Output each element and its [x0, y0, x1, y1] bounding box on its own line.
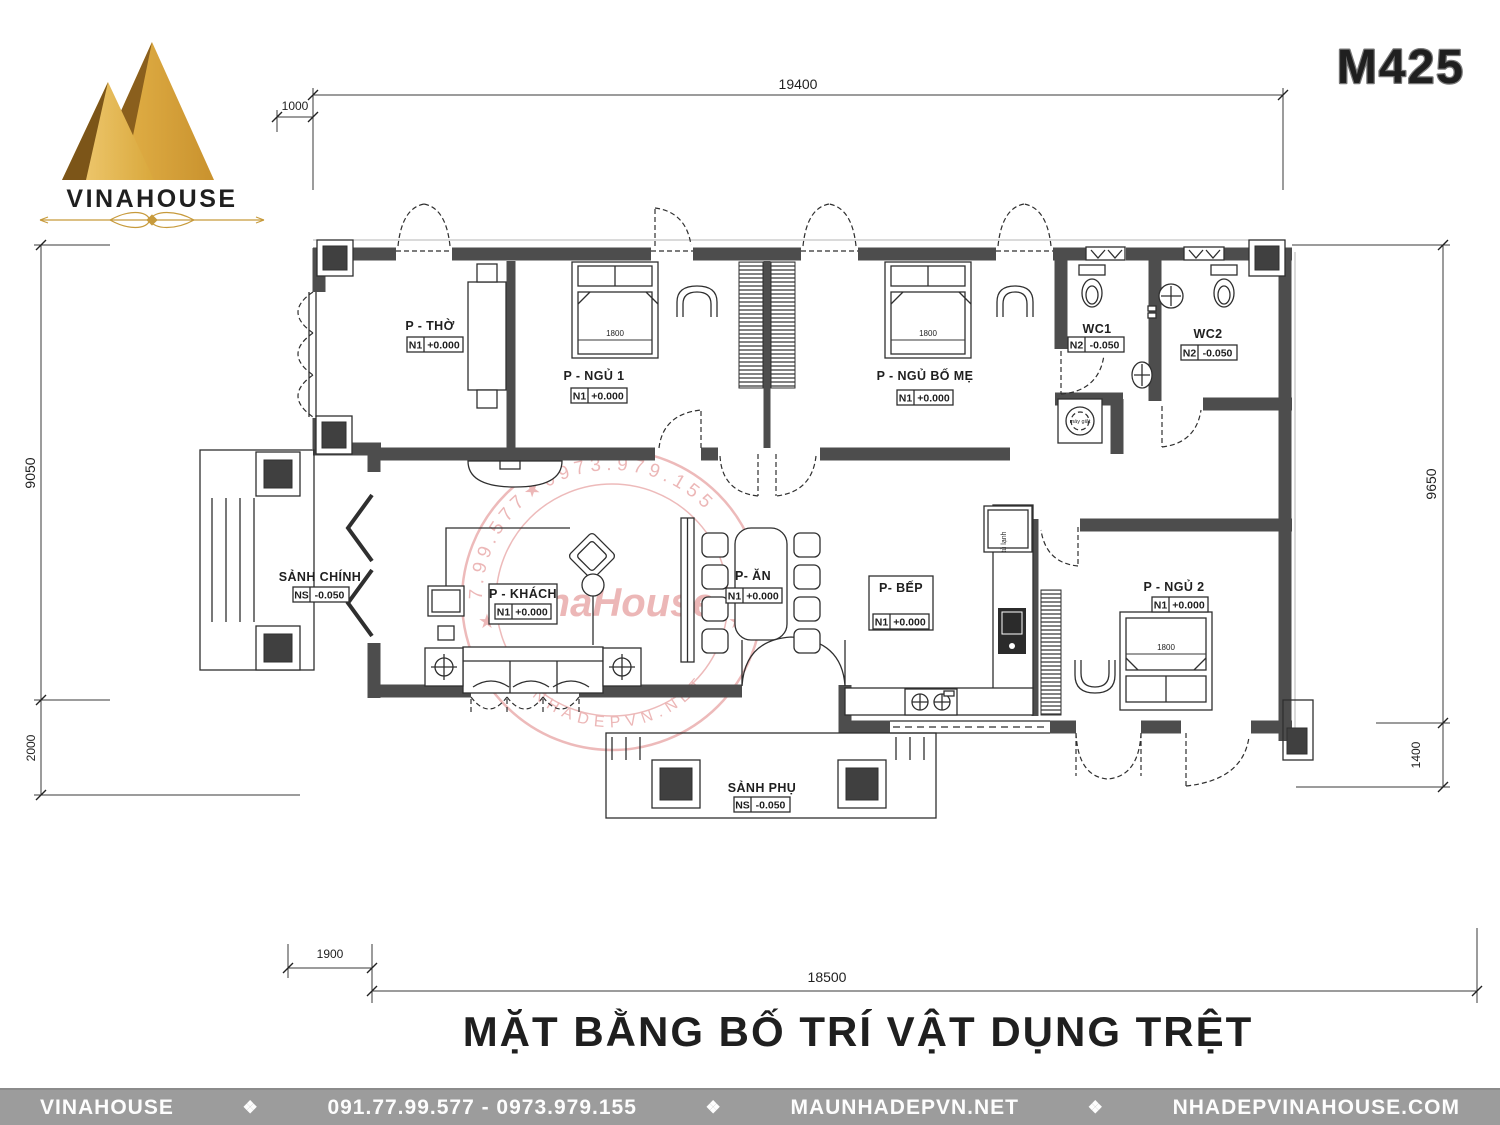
logo-flourish [40, 213, 264, 228]
fridge-label: tủ lạnh [1000, 531, 1008, 552]
floor-plan-drawing: VINAHOUSE M425 7.99.577★0973.979.155 MAU… [0, 0, 1500, 1088]
footer-bar: VINAHOUSE ❖ 091.77.99.577 - 0973.979.155… [0, 1088, 1500, 1125]
level-box-wc1: N2 -0.050 [1068, 337, 1124, 352]
room-label-tho: P - THỜ [405, 318, 454, 333]
svg-text:-0.050: -0.050 [756, 800, 786, 812]
floor-plan-sheet: VINAHOUSE M425 7.99.577★0973.979.155 MAU… [0, 0, 1500, 1125]
svg-text:-0.050: -0.050 [1203, 348, 1233, 360]
room-label-wc2: WC2 [1194, 327, 1223, 341]
footer-site-primary: MAUNHADEPVN.NET [790, 1096, 1019, 1120]
dim-right-offset: 1400 [1409, 741, 1423, 768]
logo-brand-text: VINAHOUSE [66, 185, 237, 213]
level-box-ngu2: N1 +0.000 [1152, 597, 1208, 612]
footer-separator-icon: ❖ [1088, 1098, 1104, 1118]
bed-bo-me-size: 1800 [919, 329, 937, 338]
level-box-tho: N1 +0.000 [407, 337, 463, 352]
svg-text:N2: N2 [1070, 340, 1084, 352]
bed-ngu1-size: 1800 [606, 329, 624, 338]
bed-ngu1: 1800 [572, 262, 658, 358]
footer-brand: VINAHOUSE [40, 1096, 174, 1120]
svg-text:NS: NS [735, 800, 750, 812]
svg-text:N1: N1 [409, 340, 423, 352]
room-label-khach: P - KHÁCH [489, 586, 557, 601]
svg-text:NS: NS [294, 590, 309, 602]
furniture-altar [468, 264, 506, 408]
room-label-bep: P- BẾP [879, 580, 923, 595]
bed-bo-me: 1800 [885, 262, 971, 358]
footer-separator-icon: ❖ [706, 1098, 722, 1118]
svg-text:+0.000: +0.000 [917, 393, 950, 405]
room-label-ngu2: P - NGỦ 2 [1143, 579, 1204, 594]
svg-text:+0.000: +0.000 [746, 591, 779, 603]
model-code: M425 [1337, 41, 1465, 94]
kitchen-window [890, 721, 1050, 733]
plan-title: MẶT BẰNG BỐ TRÍ VẬT DỤNG TRỆT [463, 1007, 1254, 1055]
level-box-ngu1: N1 +0.000 [571, 388, 627, 403]
washing-machine: máy giặt [1058, 399, 1102, 443]
bed-ngu2: 1800 [1120, 612, 1212, 710]
room-label-sanh-phu: SẢNH PHỤ [728, 780, 796, 795]
dim-right-height: 9650 [1423, 468, 1439, 499]
svg-text:+0.000: +0.000 [427, 340, 460, 352]
footer-site-secondary: NHADEPVINAHOUSE.COM [1173, 1096, 1460, 1120]
room-label-bo-me: P - NGỦ BỐ MẸ [877, 368, 974, 383]
footer-separator-icon: ❖ [243, 1098, 259, 1118]
svg-text:N1: N1 [497, 607, 511, 619]
dim-bottom-width: 18500 [808, 969, 847, 985]
vinahouse-logo: VINAHOUSE [40, 42, 264, 228]
level-box-an: N1 +0.000 [726, 588, 782, 603]
svg-text:+0.000: +0.000 [893, 617, 926, 629]
svg-text:N1: N1 [875, 617, 889, 629]
svg-text:N2: N2 [1183, 348, 1197, 360]
dim-top-offset: 1000 [282, 99, 309, 113]
washer-label: máy giặt [1070, 419, 1091, 425]
level-box-sanh-phu: NS -0.050 [734, 797, 790, 812]
svg-text:N1: N1 [899, 393, 913, 405]
dim-bottom-offset: 1900 [317, 947, 344, 961]
svg-text:N1: N1 [728, 591, 742, 603]
svg-text:N1: N1 [573, 391, 587, 403]
dim-left-height: 9050 [22, 457, 38, 488]
entrance-zigzag-door [348, 495, 372, 636]
svg-text:-0.050: -0.050 [1090, 340, 1120, 352]
room-label-ngu1: P - NGỦ 1 [563, 368, 624, 383]
console-detail [500, 461, 520, 469]
level-box-wc2: N2 -0.050 [1181, 345, 1237, 360]
level-box-khach: N1 +0.000 [495, 604, 551, 619]
bed-ngu2-size: 1800 [1157, 643, 1175, 652]
svg-text:+0.000: +0.000 [1172, 600, 1205, 612]
porch-sanh-chinh [200, 450, 314, 670]
room-label-an: P- ĂN [735, 568, 771, 583]
dim-top-width: 19400 [779, 76, 818, 92]
room-label-wc1: WC1 [1083, 322, 1112, 336]
svg-text:+0.000: +0.000 [515, 607, 548, 619]
svg-text:-0.050: -0.050 [315, 590, 345, 602]
level-box-bep: N1 +0.000 [873, 614, 929, 629]
footer-phone: 091.77.99.577 - 0973.979.155 [327, 1096, 636, 1120]
room-label-sanh-chinh: SẢNH CHÍNH [279, 569, 361, 584]
svg-text:+0.000: +0.000 [591, 391, 624, 403]
level-box-sanh-chinh: NS -0.050 [293, 587, 349, 602]
dim-left-porch: 2000 [24, 734, 38, 761]
level-box-bo-me: N1 +0.000 [897, 390, 953, 405]
svg-text:N1: N1 [1154, 600, 1168, 612]
